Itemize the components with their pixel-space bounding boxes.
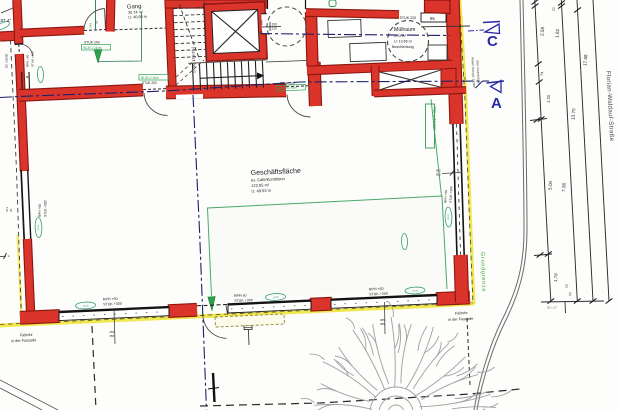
svg-text:RPH +50: RPH +50 — [369, 287, 384, 292]
svg-text:A: A — [491, 95, 502, 112]
svg-text:STUK +300: STUK +300 — [234, 298, 253, 303]
svg-text:FW = 16.5m: FW = 16.5m — [432, 107, 437, 131]
svg-text:1.33: 1.33 — [546, 94, 552, 103]
svg-text:STUK 200: STUK 200 — [142, 81, 157, 85]
svg-text:26: 26 — [9, 208, 13, 212]
svg-text:210: 210 — [260, 20, 264, 25]
svg-text:245: 245 — [89, 23, 93, 28]
svg-text:STUK +300: STUK +300 — [44, 200, 48, 217]
svg-text:RPH ±0: RPH ±0 — [234, 293, 247, 298]
svg-text:BL30-C-5cm: BL30-C-5cm — [279, 86, 297, 91]
svg-text:U: 40.60 m: U: 40.60 m — [128, 15, 147, 20]
svg-text:17.68: 17.68 — [583, 54, 589, 66]
svg-text:STUK +300: STUK +300 — [31, 51, 35, 67]
svg-text:20: 20 — [568, 292, 572, 296]
svg-text:20: 20 — [565, 284, 569, 288]
svg-text:STUK +300: STUK +300 — [103, 302, 122, 307]
svg-text:87.4°: 87.4° — [1, 18, 12, 23]
svg-text:7.36: 7.36 — [561, 182, 567, 192]
svg-text:20 x 17: 20 x 17 — [547, 306, 557, 310]
svg-text:STÜK 200: STÜK 200 — [84, 41, 100, 45]
svg-text:355: 355 — [110, 334, 115, 338]
svg-text:RPH +50: RPH +50 — [444, 190, 449, 203]
svg-text:U: 13.66 m: U: 13.66 m — [394, 40, 412, 44]
svg-text:5.00: 5.00 — [548, 180, 554, 190]
svg-text:Fallrohr: Fallrohr — [20, 333, 34, 338]
svg-text:500: 500 — [436, 172, 441, 176]
svg-text:210: 210 — [272, 27, 278, 31]
svg-text:80: 80 — [26, 75, 30, 79]
svg-text:BL30-C-5cm: BL30-C-5cm — [84, 46, 102, 50]
svg-text:RPH +50: RPH +50 — [26, 54, 30, 67]
svg-text:1.78: 1.78 — [553, 273, 559, 282]
svg-text:DC 120/80: DC 120/80 — [5, 53, 9, 68]
svg-text:74: 74 — [441, 82, 445, 86]
svg-text:±0.00: ±0.00 — [82, 304, 89, 307]
svg-text:13.70: 13.70 — [571, 108, 577, 120]
svg-text:20: 20 — [552, 7, 556, 11]
svg-text:RPH +50: RPH +50 — [38, 204, 42, 217]
svg-text:C: C — [487, 33, 498, 50]
svg-text:355: 355 — [380, 322, 385, 326]
svg-text:±0.00: ±0.00 — [272, 296, 279, 299]
svg-text:U: 49.53 m: U: 49.53 m — [251, 188, 271, 194]
svg-text:85: 85 — [430, 16, 435, 21]
svg-text:Beschichtung: Beschichtung — [392, 45, 414, 49]
svg-text:BL30-C-5cm: BL30-C-5cm — [141, 76, 159, 80]
svg-text:STUK +300: STUK +300 — [369, 292, 388, 297]
svg-text:RPH +50: RPH +50 — [103, 297, 118, 302]
svg-text:±0.00: ±0.00 — [446, 214, 449, 221]
svg-text:1.62: 1.62 — [555, 28, 561, 38]
svg-text:26: 26 — [463, 76, 467, 80]
svg-text:STUK 220: STUK 220 — [400, 16, 417, 20]
svg-text:Müllraum: Müllraum — [394, 27, 415, 33]
svg-text:±0.00: ±0.00 — [36, 224, 39, 231]
svg-text:Fallrohr: Fallrohr — [455, 311, 469, 316]
svg-text:74: 74 — [540, 72, 544, 76]
svg-text:2.58: 2.58 — [540, 26, 546, 36]
svg-text:±0.00: ±0.00 — [412, 289, 419, 292]
